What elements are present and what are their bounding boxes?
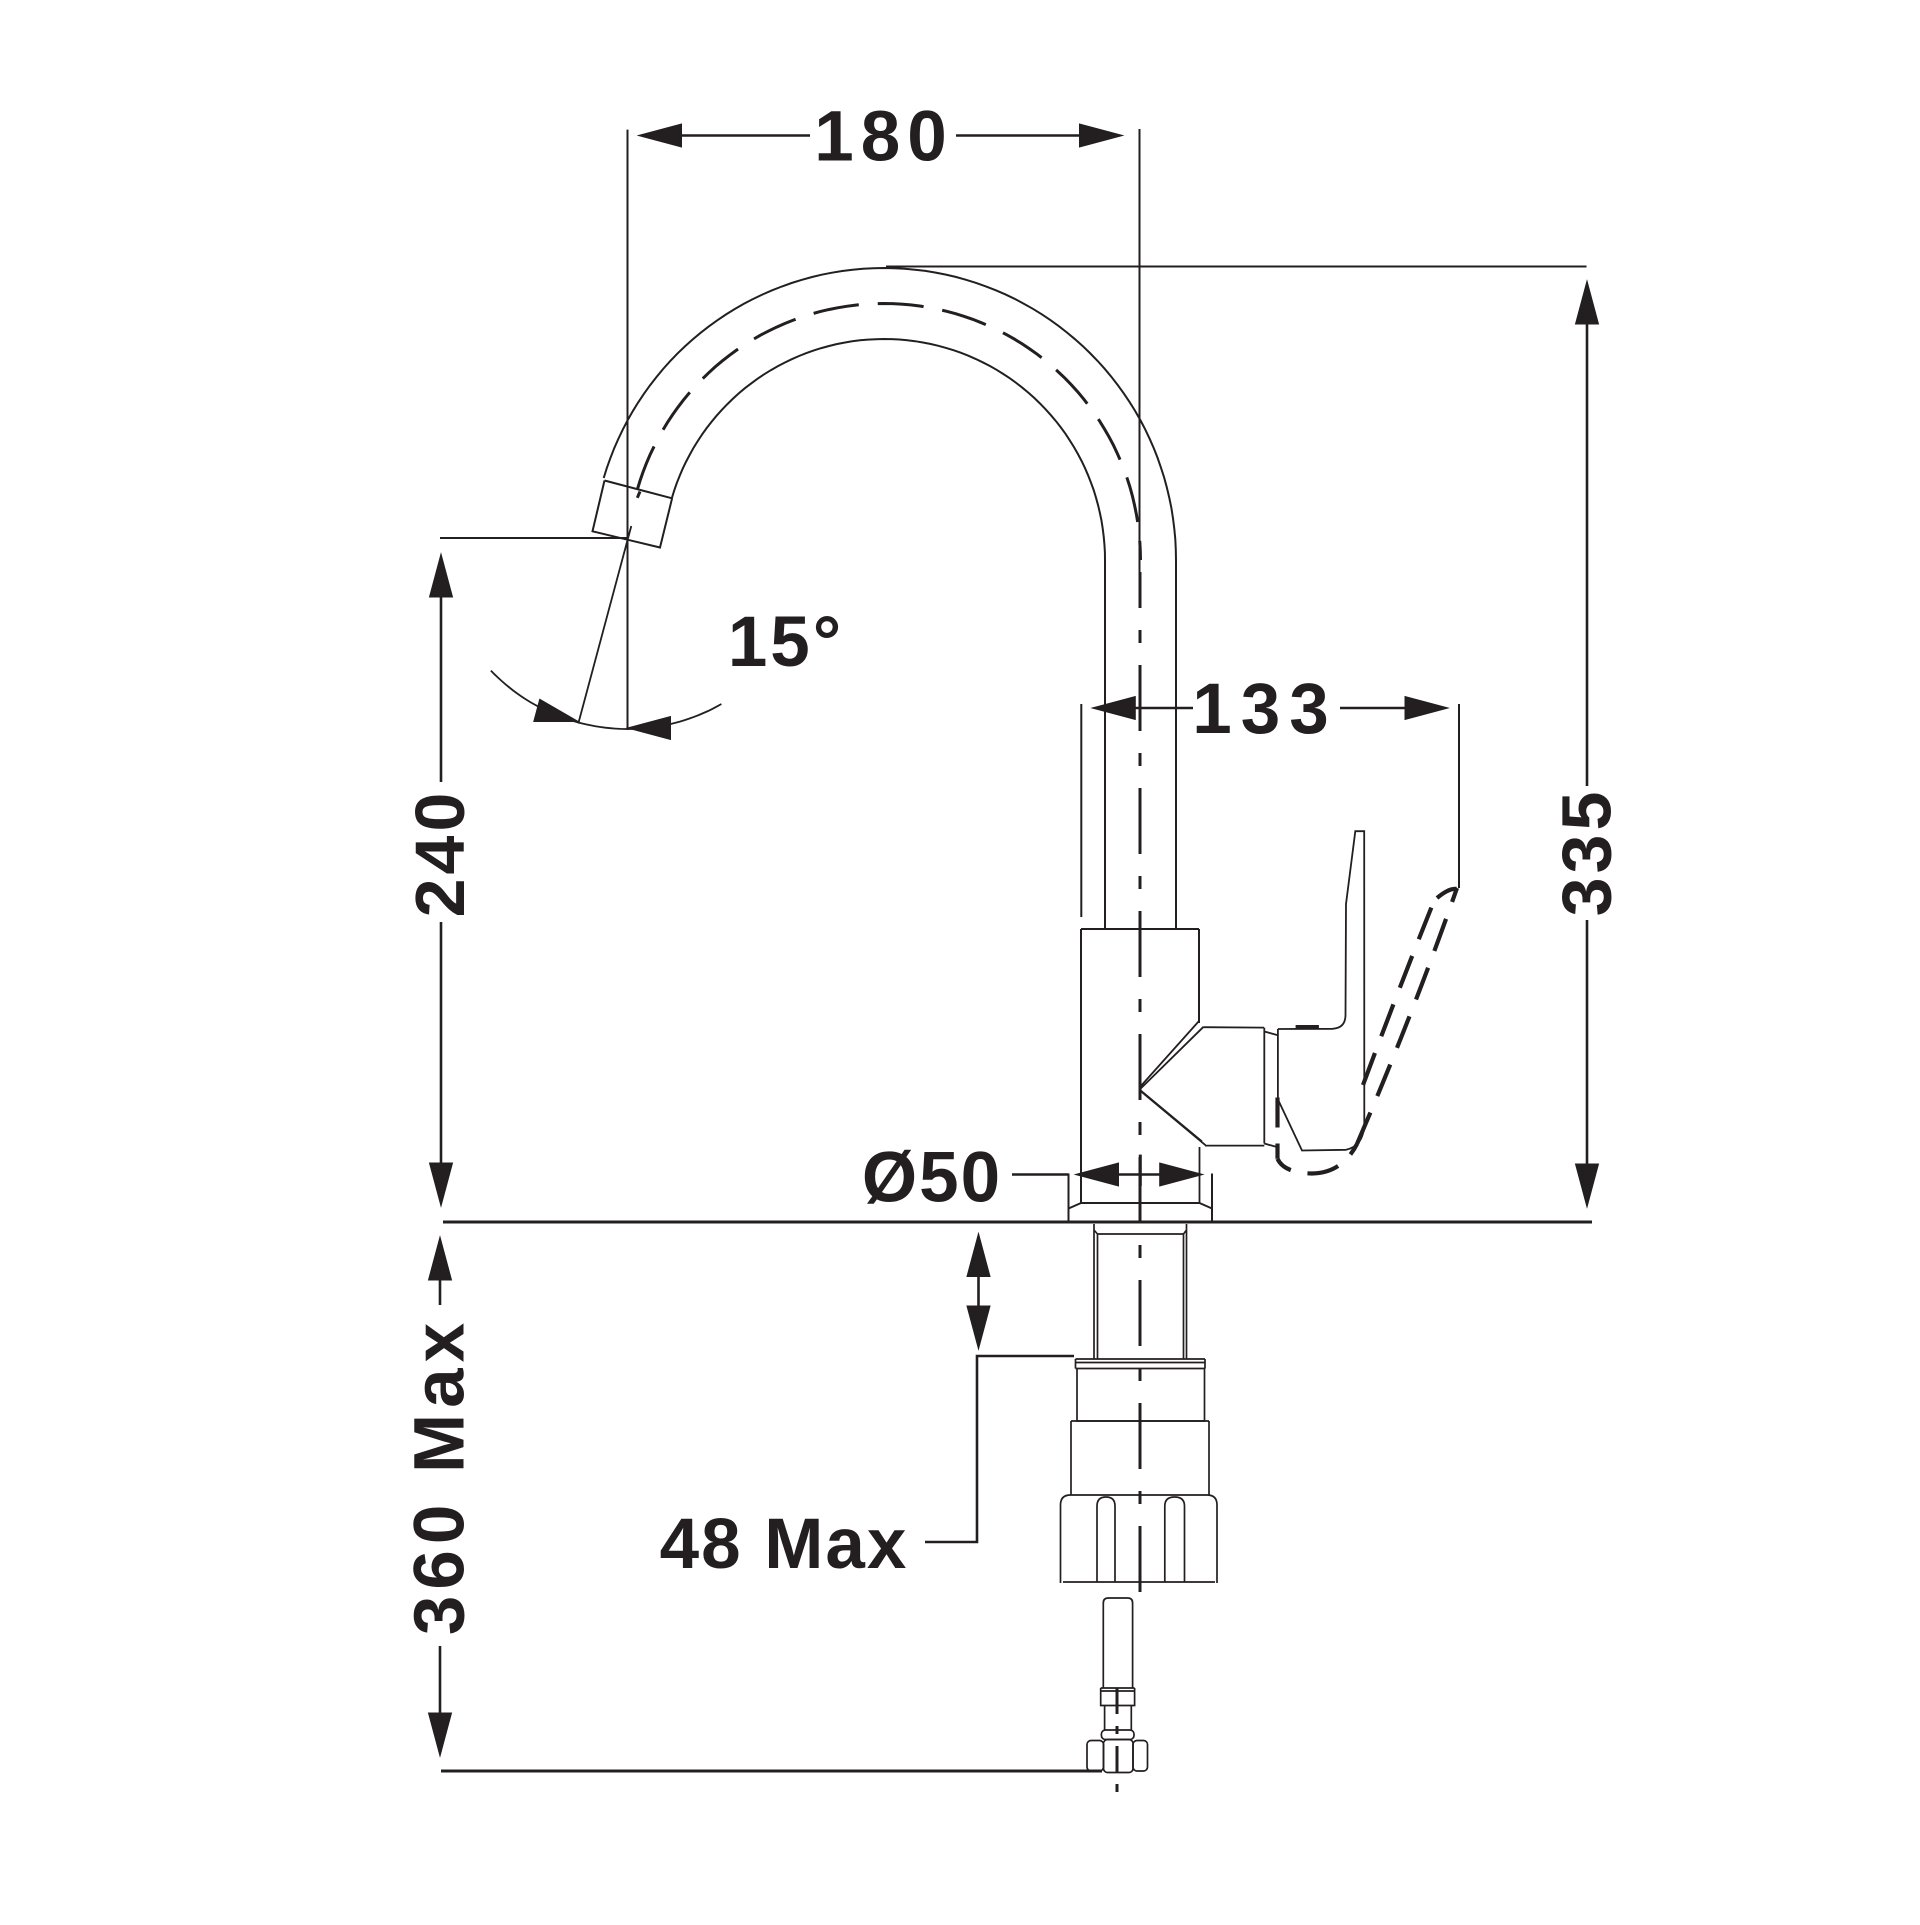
svg-text:335: 335 — [1548, 788, 1626, 917]
svg-text:180: 180 — [814, 98, 953, 177]
svg-text:360 Max: 360 Max — [401, 1317, 480, 1635]
svg-text:Ø50: Ø50 — [862, 1139, 1002, 1218]
svg-text:15°: 15° — [728, 603, 844, 682]
svg-text:48 Max: 48 Max — [660, 1505, 909, 1584]
svg-text:133: 133 — [1192, 670, 1337, 749]
svg-text:240: 240 — [401, 789, 479, 918]
